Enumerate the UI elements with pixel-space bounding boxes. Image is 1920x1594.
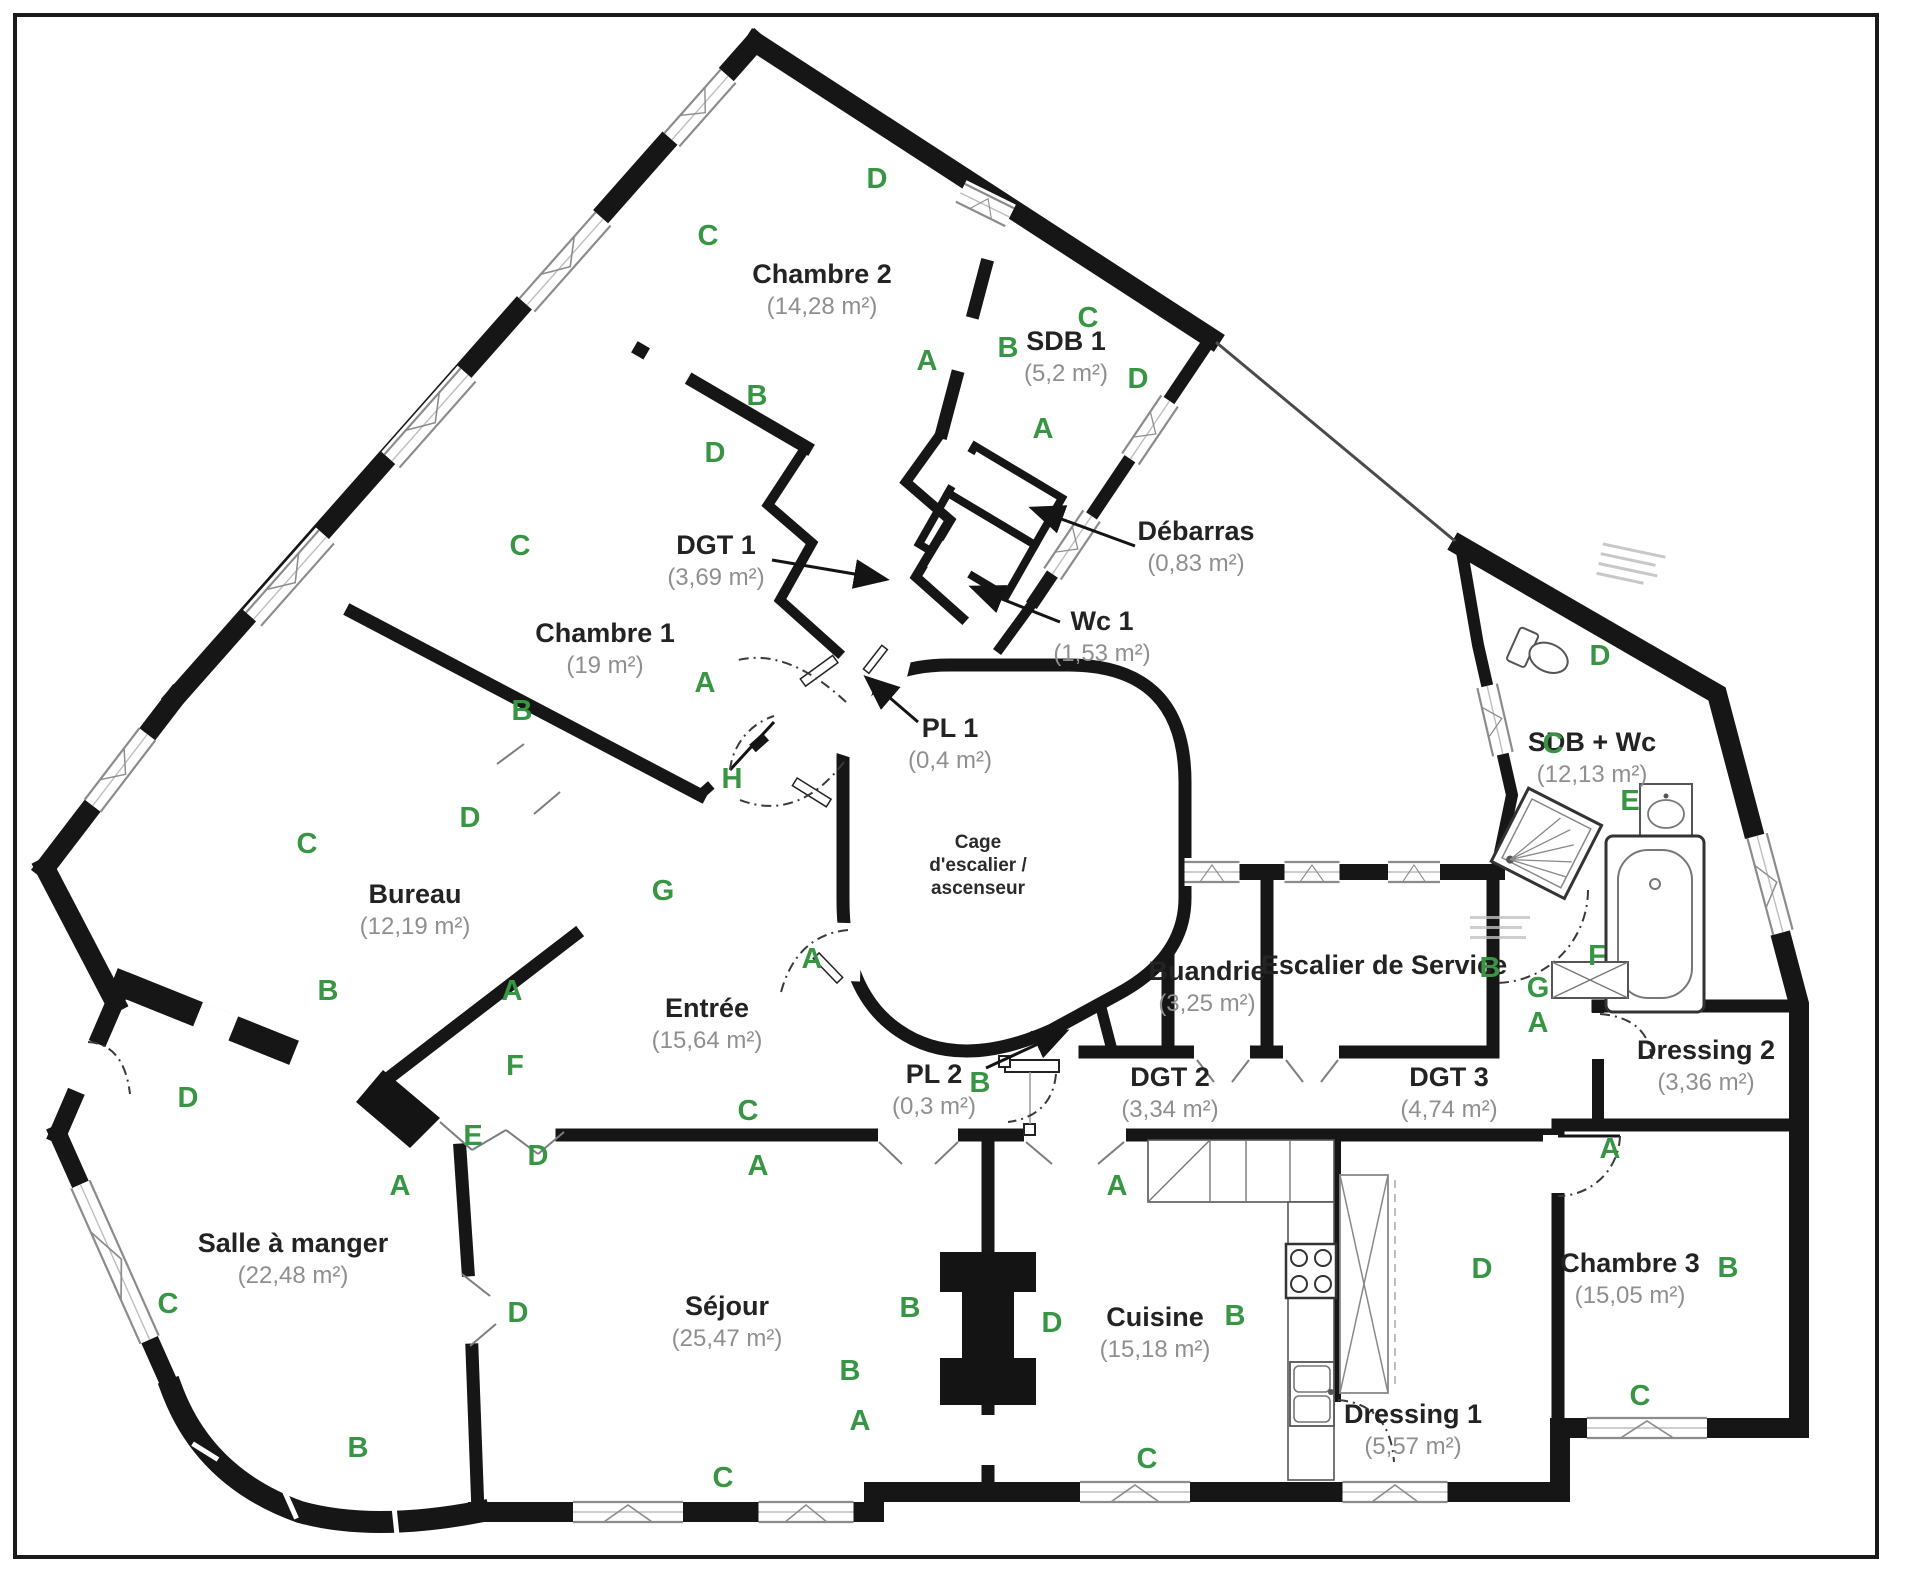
door-leaf <box>800 655 838 686</box>
pl2-door <box>1005 1060 1059 1072</box>
orientation-letter-b: B <box>747 380 768 412</box>
orientation-letter-d: D <box>1590 640 1611 672</box>
room-label-salle-a-manger: Salle à manger <box>198 1228 389 1258</box>
orientation-letter-g: G <box>1527 972 1550 1004</box>
orientation-letter-a: A <box>1033 413 1054 445</box>
orientation-letter-b: B <box>998 332 1019 364</box>
property-boundary-line <box>1211 338 1461 546</box>
room-label-wc-1: Wc 1 <box>1070 606 1133 636</box>
room-label-cuisine: Cuisine <box>1106 1302 1204 1332</box>
room-label-pl-1: PL 1 <box>922 713 979 743</box>
orientation-letter-d: D <box>1042 1307 1063 1339</box>
orientation-letter-c: C <box>1543 728 1564 760</box>
room-label-cage-escalier-ascenseur: Cage <box>955 832 1001 853</box>
room-label-chambre-1: Chambre 1 <box>535 618 675 648</box>
orientation-letter-b: B <box>900 1292 921 1324</box>
room-area-sdb-wc: (12,13 m²) <box>1537 761 1648 788</box>
fireplace <box>940 1252 1036 1405</box>
orientation-letter-d: D <box>460 802 481 834</box>
orientation-letter-a: A <box>695 667 716 699</box>
orientation-letter-h: H <box>722 763 743 795</box>
floor-plan-drawing: Chambre 2(14,28 m²)SDB 1(5,2 m²)Débarras… <box>0 0 1920 1594</box>
room-label-dressing-1: Dressing 1 <box>1344 1399 1482 1429</box>
orientation-letter-a: A <box>502 975 523 1007</box>
orientation-letter-d: D <box>528 1140 549 1172</box>
fine-print-note <box>1470 916 1530 939</box>
room-area-dressing-1: (5,57 m²) <box>1364 1433 1461 1460</box>
orientation-letter-d: D <box>705 437 726 469</box>
room-area-chambre-2: (14,28 m²) <box>767 293 878 320</box>
orientation-letter-c: C <box>1630 1380 1651 1412</box>
orientation-letter-e: E <box>463 1120 482 1152</box>
room-label-bureau: Bureau <box>368 879 461 909</box>
room-area-chambre-3: (15,05 m²) <box>1575 1282 1686 1309</box>
orientation-letter-b: B <box>840 1355 861 1387</box>
orientation-letter-d: D <box>867 163 888 195</box>
toilet-icon <box>1506 627 1574 683</box>
room-label-pl-2: PL 2 <box>906 1059 963 1089</box>
orientation-letter-c: C <box>1078 302 1099 334</box>
room-label-cage-escalier-ascenseur: ascenseur <box>931 878 1026 899</box>
room-area-dressing-2: (3,36 m²) <box>1657 1069 1754 1096</box>
orientation-letter-a: A <box>1600 1133 1621 1165</box>
room-area-sejour: (25,47 m²) <box>672 1325 783 1352</box>
room-label-chambre-2: Chambre 2 <box>752 259 892 289</box>
room-area-cuisine: (15,18 m²) <box>1100 1336 1211 1363</box>
orientation-letter-c: C <box>698 220 719 252</box>
orientation-letter-a: A <box>917 345 938 377</box>
orientation-letter-c: C <box>158 1288 179 1320</box>
orientation-letter-a: A <box>850 1405 871 1437</box>
dressing1-wardrobe <box>1340 1175 1395 1393</box>
orientation-letter-c: C <box>1137 1443 1158 1475</box>
bathroom-sink-icon <box>1640 784 1692 838</box>
stove-icon <box>1286 1244 1336 1298</box>
orientation-letter-c: C <box>297 828 318 860</box>
room-label-dgt-2: DGT 2 <box>1130 1062 1210 1092</box>
orientation-letter-a: A <box>1528 1007 1549 1039</box>
orientation-letter-e: E <box>1620 785 1639 817</box>
orientation-letter-b: B <box>318 975 339 1007</box>
room-area-dgt-1: (3,69 m²) <box>667 564 764 591</box>
kitchen-sink-icon <box>1290 1362 1334 1426</box>
room-label-debarras: Débarras <box>1137 516 1254 546</box>
orientation-letter-b: B <box>1718 1252 1739 1284</box>
orientation-letter-a: A <box>390 1170 411 1202</box>
orientation-letter-a: A <box>748 1150 769 1182</box>
room-label-entree: Entrée <box>665 993 749 1023</box>
room-area-bureau: (12,19 m²) <box>360 913 471 940</box>
orientation-letter-f: F <box>1588 940 1606 972</box>
orientation-letter-b: B <box>1480 952 1501 984</box>
room-area-salle-a-manger: (22,48 m²) <box>238 1262 349 1289</box>
orientation-letter-b: B <box>970 1067 991 1099</box>
room-label-chambre-3: Chambre 3 <box>1560 1248 1700 1278</box>
room-area-pl-2: (0,3 m²) <box>892 1093 976 1120</box>
room-area-dgt-2: (3,34 m²) <box>1121 1096 1218 1123</box>
orientation-letter-d: D <box>508 1297 529 1329</box>
room-area-pl-1: (0,4 m²) <box>908 747 992 774</box>
orientation-letter-f: F <box>506 1050 524 1082</box>
room-label-dgt-1: DGT 1 <box>676 530 756 560</box>
orientation-letter-a: A <box>1107 1170 1128 1202</box>
orientation-letter-c: C <box>713 1462 734 1494</box>
room-area-sdb-1: (5,2 m²) <box>1024 360 1108 387</box>
orientation-letter-d: D <box>178 1082 199 1114</box>
room-area-dgt-3: (4,74 m²) <box>1400 1096 1497 1123</box>
room-area-entree: (15,64 m²) <box>652 1027 763 1054</box>
orientation-letter-g: G <box>652 875 675 907</box>
room-area-wc-1: (1,53 m²) <box>1053 640 1150 667</box>
orientation-letter-c: C <box>738 1095 759 1127</box>
orientation-letter-d: D <box>1472 1253 1493 1285</box>
wall-hinge-block <box>356 1070 440 1148</box>
room-area-debarras: (0,83 m²) <box>1147 550 1244 577</box>
orientation-letter-b: B <box>1225 1300 1246 1332</box>
orientation-letter-b: B <box>512 695 533 727</box>
room-label-dressing-2: Dressing 2 <box>1637 1035 1775 1065</box>
orientation-letter-c: C <box>510 530 531 562</box>
floor-plan-page: Chambre 2(14,28 m²)SDB 1(5,2 m²)Débarras… <box>0 0 1920 1594</box>
room-label-dgt-3: DGT 3 <box>1409 1062 1489 1092</box>
fine-print-note <box>1596 542 1665 588</box>
room-area-chambre-1: (19 m²) <box>566 652 643 679</box>
room-label-buandrie: Buandrie <box>1148 956 1265 986</box>
room-area-buandrie: (3,25 m²) <box>1158 990 1255 1017</box>
orientation-letter-a: A <box>802 943 823 975</box>
orientation-letter-b: B <box>348 1432 369 1464</box>
room-label-sejour: Séjour <box>685 1291 770 1321</box>
room-label-escalier-de-service: Escalier de Service <box>1261 950 1507 980</box>
room-label-cage-escalier-ascenseur: d'escalier / <box>929 855 1027 876</box>
orientation-letter-d: D <box>1128 363 1149 395</box>
